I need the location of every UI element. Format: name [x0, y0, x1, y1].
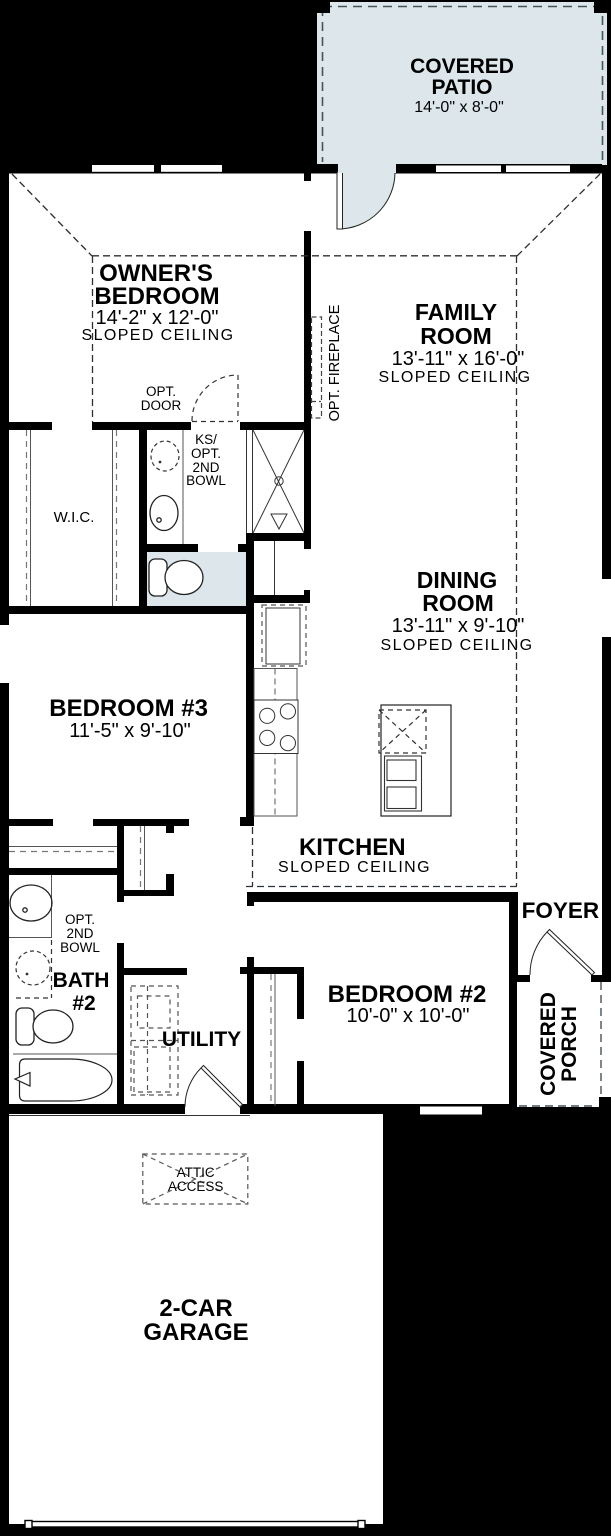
- svg-text:PORCH: PORCH: [558, 1006, 581, 1082]
- svg-text:2ND: 2ND: [66, 926, 93, 941]
- svg-text:PATIO: PATIO: [431, 76, 492, 99]
- svg-text:SLOPED CEILING: SLOPED CEILING: [278, 859, 431, 876]
- svg-text:OPT.: OPT.: [191, 446, 221, 461]
- svg-text:ROOM: ROOM: [422, 590, 494, 616]
- svg-text:OPT.: OPT.: [65, 912, 95, 927]
- svg-text:UTILITY: UTILITY: [162, 1028, 241, 1051]
- svg-text:14'-2" x 12'-0": 14'-2" x 12'-0": [95, 307, 218, 329]
- svg-text:DOOR: DOOR: [141, 398, 182, 413]
- svg-text:#2: #2: [72, 992, 95, 1015]
- svg-text:FOYER: FOYER: [522, 898, 600, 923]
- svg-text:FAMILY: FAMILY: [415, 299, 497, 325]
- svg-text:OPT. FIREPLACE: OPT. FIREPLACE: [327, 304, 343, 421]
- svg-text:W.I.C.: W.I.C.: [54, 509, 95, 526]
- svg-text:BATH: BATH: [53, 969, 110, 992]
- svg-text:ATTIC: ATTIC: [177, 1165, 215, 1180]
- svg-text:13'-11" x 16'-0": 13'-11" x 16'-0": [392, 348, 525, 370]
- svg-text:14'-0" x 8'-0": 14'-0" x 8'-0": [414, 99, 504, 116]
- svg-text:ROOM: ROOM: [420, 323, 492, 349]
- svg-text:OPT.: OPT.: [146, 384, 176, 399]
- svg-text:BOWL: BOWL: [60, 940, 100, 955]
- svg-text:ACCESS: ACCESS: [168, 1179, 224, 1194]
- svg-text:BEDROOM #3: BEDROOM #3: [49, 695, 208, 722]
- svg-text:SLOPED CEILING: SLOPED CEILING: [82, 327, 235, 344]
- svg-text:SLOPED CEILING: SLOPED CEILING: [379, 369, 532, 386]
- svg-text:11'-5" x 9'-10": 11'-5" x 9'-10": [69, 720, 191, 742]
- svg-text:BEDROOM: BEDROOM: [94, 283, 219, 310]
- svg-text:BOWL: BOWL: [186, 473, 226, 488]
- svg-text:2-CAR: 2-CAR: [159, 1295, 232, 1322]
- svg-text:13'-11" x 9'-10": 13'-11" x 9'-10": [392, 615, 525, 637]
- svg-text:BEDROOM #2: BEDROOM #2: [328, 981, 487, 1008]
- svg-text:KITCHEN: KITCHEN: [299, 834, 406, 861]
- svg-text:COVERED: COVERED: [537, 992, 560, 1096]
- svg-text:GARAGE: GARAGE: [143, 1319, 248, 1346]
- svg-text:KS/: KS/: [195, 432, 217, 447]
- svg-text:10'-0" x 10'-0": 10'-0" x 10'-0": [346, 1005, 469, 1027]
- svg-text:COVERED: COVERED: [410, 55, 514, 78]
- svg-text:SLOPED CEILING: SLOPED CEILING: [381, 637, 534, 654]
